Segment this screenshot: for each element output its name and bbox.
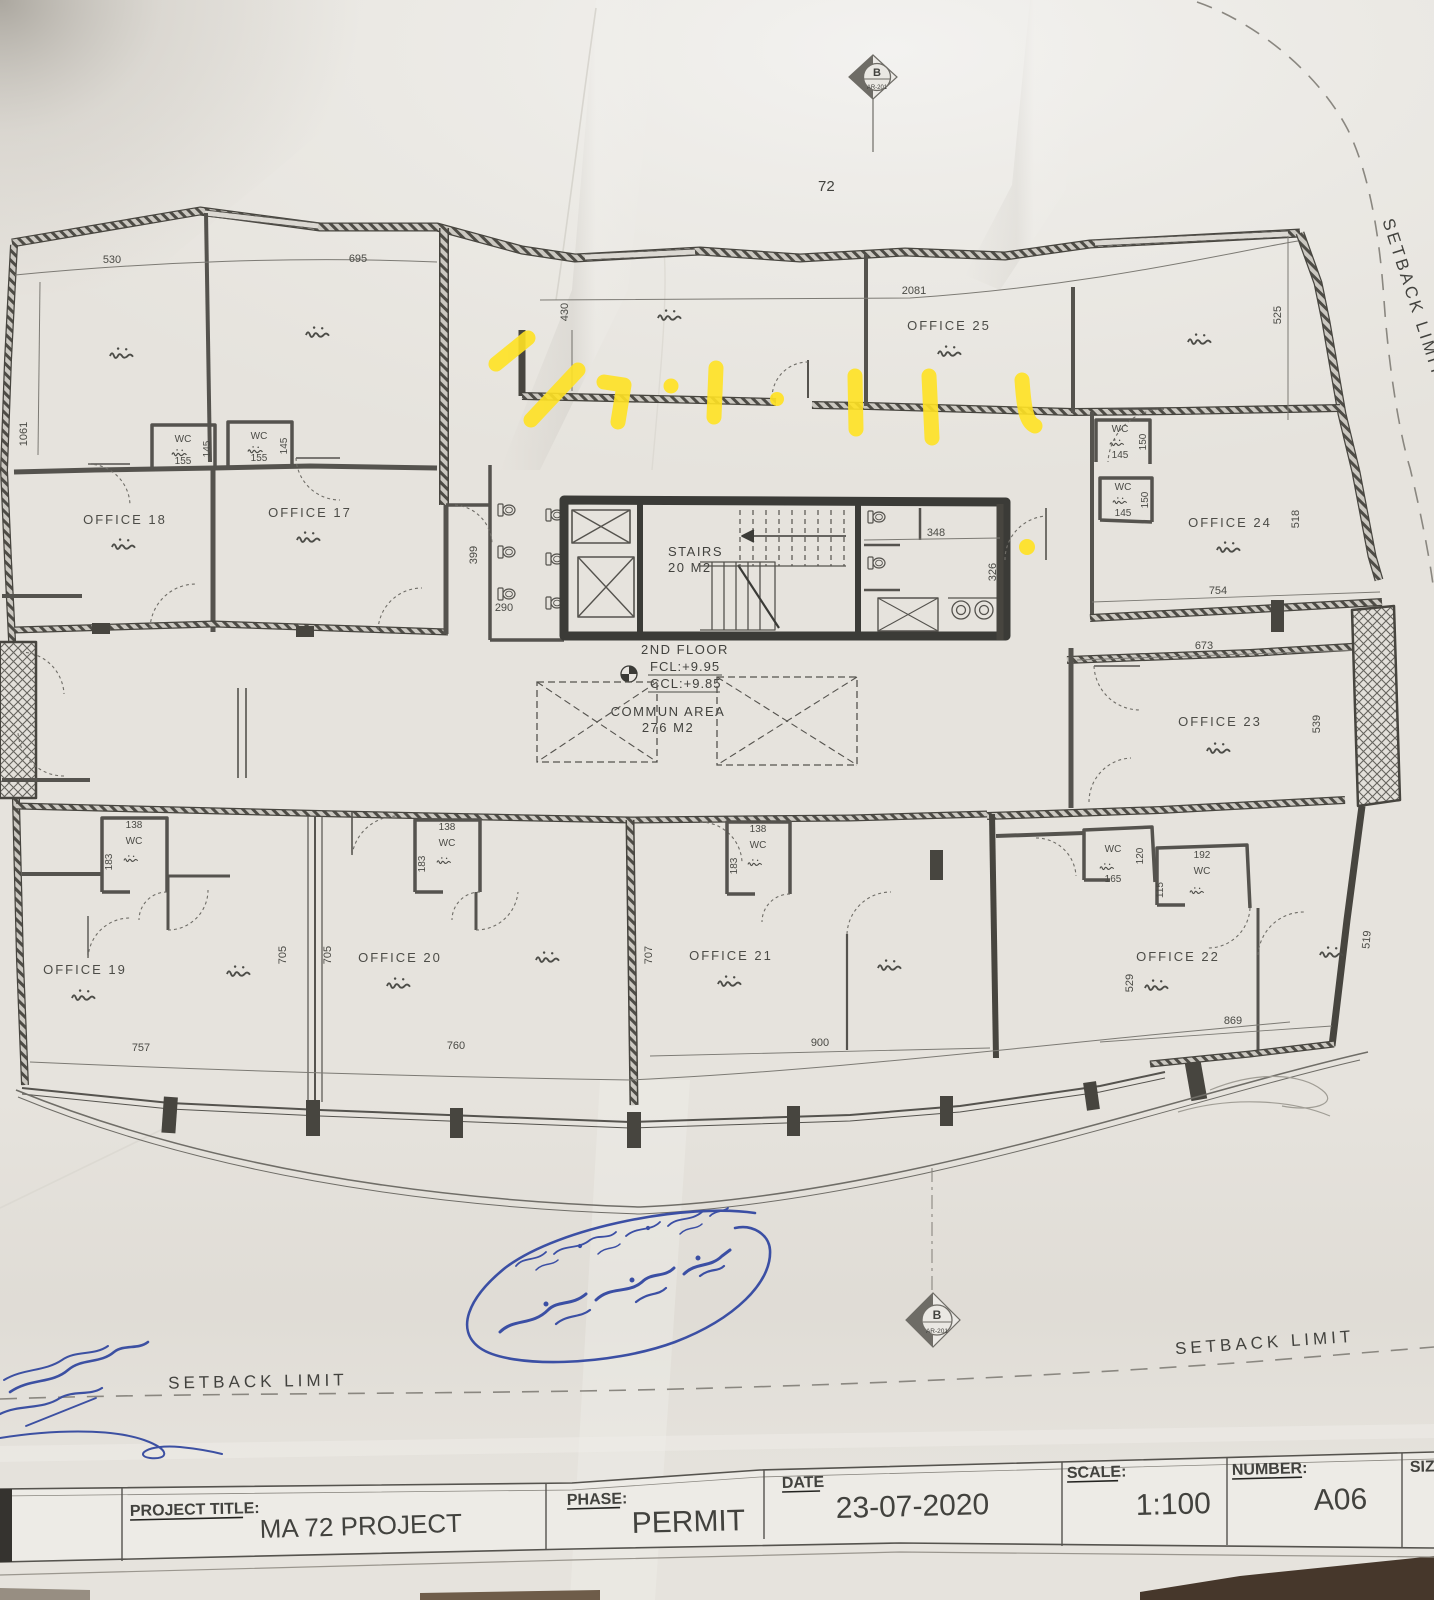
- svg-text:2081: 2081: [902, 285, 926, 297]
- svg-text:MA 72 PROJECT: MA 72 PROJECT: [259, 1508, 462, 1544]
- svg-text:518: 518: [1290, 510, 1302, 528]
- svg-text:OFFICE 21: OFFICE 21: [689, 948, 773, 963]
- svg-text:OFFICE 25: OFFICE 25: [907, 318, 991, 333]
- svg-text:OFFICE 18: OFFICE 18: [83, 512, 167, 527]
- svg-text:OFFICE 24: OFFICE 24: [1188, 515, 1272, 530]
- svg-text:707: 707: [643, 946, 655, 964]
- svg-text:20 M2: 20 M2: [668, 560, 712, 575]
- svg-text:138: 138: [750, 824, 767, 835]
- svg-text:150: 150: [1140, 491, 1151, 508]
- svg-text:529: 529: [1124, 974, 1136, 992]
- svg-text:WC: WC: [1194, 866, 1211, 877]
- svg-text:WC: WC: [439, 838, 456, 849]
- svg-text:145: 145: [202, 440, 213, 457]
- svg-text:1061: 1061: [18, 422, 30, 446]
- svg-text:754: 754: [1209, 585, 1227, 597]
- svg-text:NUMBER:: NUMBER:: [1232, 1460, 1308, 1479]
- svg-text:145: 145: [1112, 450, 1129, 461]
- svg-text:430: 430: [559, 303, 571, 321]
- svg-text:OFFICE 17: OFFICE 17: [268, 505, 352, 520]
- svg-text:OFFICE 23: OFFICE 23: [1178, 714, 1262, 729]
- svg-text:155: 155: [251, 453, 268, 464]
- svg-text:72: 72: [818, 178, 835, 195]
- svg-text:399: 399: [468, 546, 480, 564]
- svg-text:OFFICE 19: OFFICE 19: [43, 962, 127, 977]
- svg-text:869: 869: [1224, 1015, 1242, 1027]
- svg-text:STAIRS: STAIRS: [668, 544, 723, 559]
- svg-text:145: 145: [279, 437, 290, 454]
- svg-text:PHASE:: PHASE:: [567, 1490, 628, 1509]
- svg-text:165: 165: [1105, 874, 1122, 885]
- svg-text:525: 525: [1272, 306, 1284, 324]
- svg-text:705: 705: [322, 946, 334, 964]
- svg-text:120: 120: [1135, 847, 1146, 864]
- svg-text:FCL:+9.95: FCL:+9.95: [650, 659, 720, 674]
- svg-text:183: 183: [104, 853, 115, 870]
- svg-text:AR-201: AR-201: [867, 85, 888, 91]
- svg-text:138: 138: [439, 822, 456, 833]
- svg-text:326: 326: [987, 563, 999, 581]
- svg-text:23-07-2020: 23-07-2020: [835, 1488, 989, 1525]
- svg-text:PERMIT: PERMIT: [631, 1504, 745, 1540]
- svg-text:B: B: [933, 1308, 942, 1322]
- svg-text:SIZ: SIZ: [1410, 1458, 1434, 1476]
- svg-text:2ND FLOOR: 2ND FLOOR: [641, 642, 729, 657]
- svg-text:B: B: [873, 67, 881, 79]
- svg-text:115: 115: [1155, 882, 1166, 898]
- svg-text:WC: WC: [1115, 482, 1132, 493]
- svg-text:192: 192: [1194, 850, 1211, 861]
- svg-text:183: 183: [417, 855, 428, 872]
- svg-text:150: 150: [1138, 433, 1149, 450]
- svg-text:757: 757: [132, 1042, 150, 1054]
- svg-text:155: 155: [175, 456, 192, 467]
- svg-text:COMMUN AREA: COMMUN AREA: [611, 704, 726, 719]
- svg-text:183: 183: [729, 857, 740, 874]
- svg-text:OFFICE 22: OFFICE 22: [1136, 949, 1220, 964]
- svg-text:138: 138: [126, 820, 143, 831]
- svg-text:1:100: 1:100: [1135, 1487, 1211, 1522]
- svg-text:WC: WC: [126, 836, 143, 847]
- svg-text:WC: WC: [251, 431, 268, 442]
- svg-text:673: 673: [1195, 640, 1213, 652]
- svg-text:276 M2: 276 M2: [642, 720, 694, 735]
- svg-text:530: 530: [103, 254, 121, 266]
- svg-text:AR-201: AR-201: [926, 1328, 948, 1335]
- svg-text:145: 145: [1115, 508, 1132, 519]
- svg-text:539: 539: [1311, 715, 1323, 733]
- svg-text:519: 519: [1360, 930, 1374, 949]
- svg-text:695: 695: [349, 253, 367, 265]
- svg-text:348: 348: [927, 527, 945, 539]
- svg-text:705: 705: [277, 946, 289, 964]
- svg-text:DATE: DATE: [782, 1474, 825, 1492]
- svg-text:900: 900: [811, 1037, 829, 1049]
- svg-text:WC: WC: [1112, 424, 1129, 435]
- svg-text:SETBACK LIMIT: SETBACK LIMIT: [168, 1370, 348, 1392]
- svg-text:WC: WC: [175, 434, 192, 445]
- svg-text:290: 290: [495, 602, 513, 614]
- svg-text:A06: A06: [1313, 1483, 1367, 1517]
- svg-text:WC: WC: [750, 840, 767, 851]
- svg-text:760: 760: [447, 1040, 465, 1052]
- svg-text:OFFICE 20: OFFICE 20: [358, 950, 442, 965]
- svg-text:WC: WC: [1105, 844, 1122, 855]
- svg-text:SCALE:: SCALE:: [1067, 1463, 1127, 1482]
- svg-text:CCL:+9.85: CCL:+9.85: [650, 676, 722, 691]
